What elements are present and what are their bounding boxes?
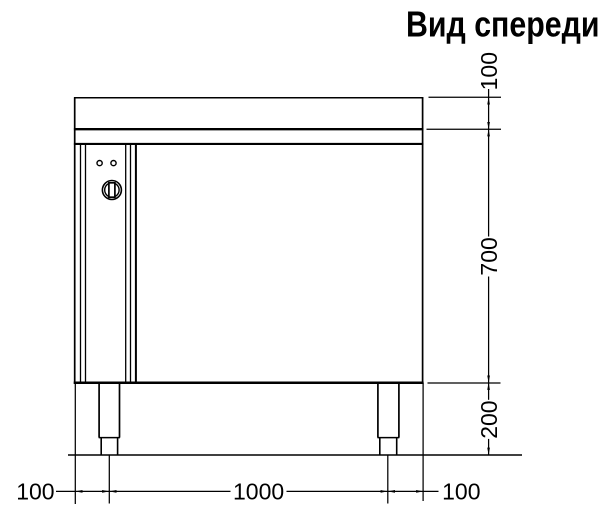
svg-text:700: 700: [476, 237, 502, 275]
svg-text:100: 100: [476, 52, 502, 90]
svg-text:200: 200: [476, 400, 502, 438]
svg-text:1000: 1000: [233, 479, 284, 505]
svg-text:100: 100: [16, 479, 54, 505]
svg-text:Вид спереди: Вид спереди: [406, 3, 600, 44]
svg-text:100: 100: [442, 479, 480, 505]
